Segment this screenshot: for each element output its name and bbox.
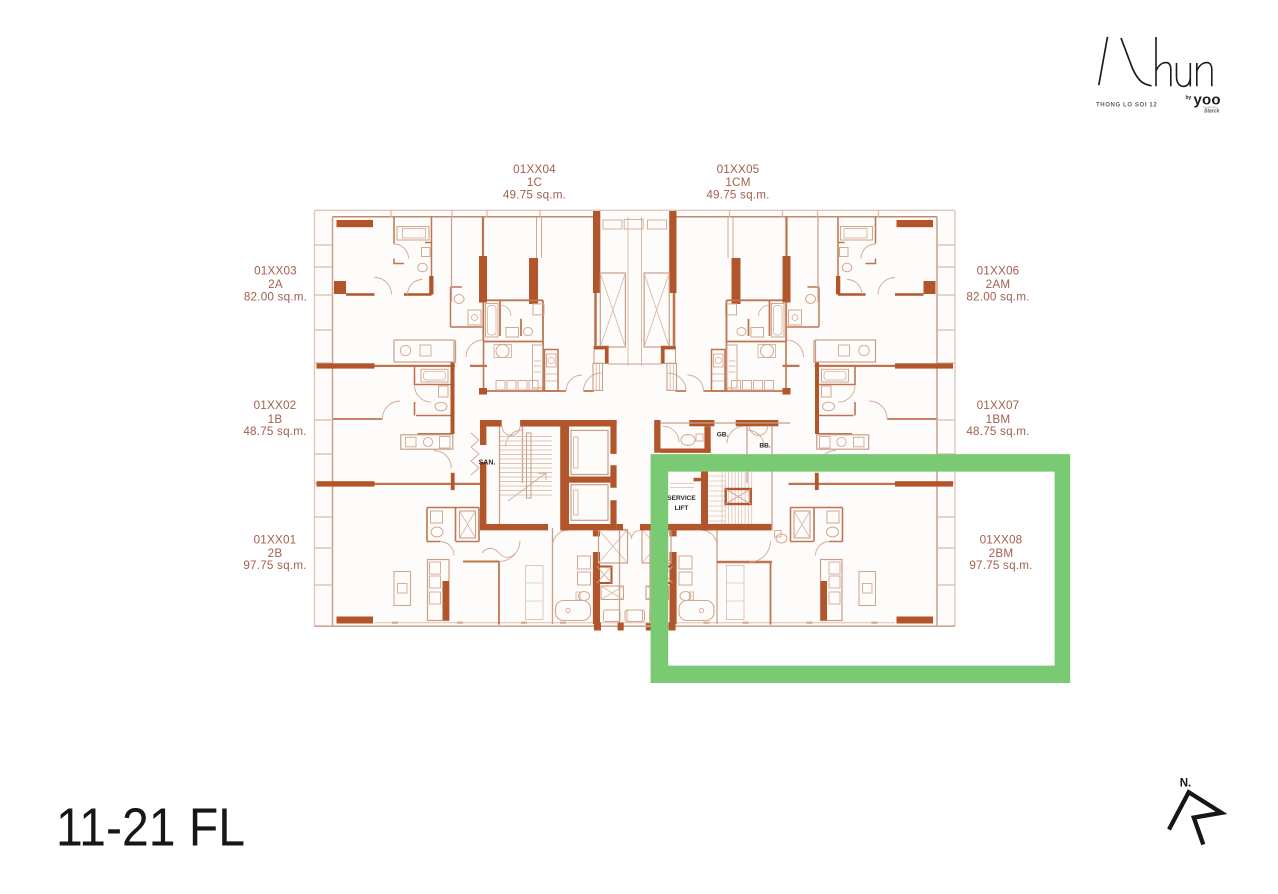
svg-text:48.75 sq.m.: 48.75 sq.m. — [966, 425, 1029, 438]
svg-text:SERVICE: SERVICE — [667, 495, 696, 502]
svg-text:SAN.: SAN. — [479, 460, 496, 467]
svg-text:01XX06: 01XX06 — [977, 265, 1020, 278]
svg-text:48.75 sq.m.: 48.75 sq.m. — [243, 425, 306, 438]
svg-text:01XX07: 01XX07 — [977, 399, 1020, 412]
svg-text:01XX01: 01XX01 — [254, 534, 297, 547]
svg-text:01XX02: 01XX02 — [254, 399, 297, 412]
svg-text:11-21 FL: 11-21 FL — [56, 799, 245, 858]
svg-text:82.00 sq.m.: 82.00 sq.m. — [244, 291, 307, 304]
svg-text:2A: 2A — [268, 278, 283, 291]
svg-text:by: by — [1186, 95, 1192, 101]
svg-text:49.75 sq.m.: 49.75 sq.m. — [503, 189, 566, 202]
svg-text:1CM: 1CM — [725, 176, 750, 189]
svg-text:01XX08: 01XX08 — [980, 534, 1023, 547]
svg-text:GB.: GB. — [717, 432, 729, 439]
svg-text:2AM: 2AM — [986, 278, 1011, 291]
svg-text:THONG LO SOI 12: THONG LO SOI 12 — [1096, 103, 1157, 109]
svg-text:97.75 sq.m.: 97.75 sq.m. — [243, 559, 306, 572]
svg-text:01XX04: 01XX04 — [513, 163, 556, 176]
svg-text:01XX05: 01XX05 — [717, 163, 760, 176]
svg-text:49.75 sq.m.: 49.75 sq.m. — [706, 189, 769, 202]
svg-text:N.: N. — [1180, 778, 1192, 790]
svg-text:97.75 sq.m.: 97.75 sq.m. — [969, 559, 1032, 572]
svg-text:LIFT: LIFT — [675, 505, 689, 512]
svg-text:BB.: BB. — [759, 443, 770, 450]
svg-text:82.00 sq.m.: 82.00 sq.m. — [966, 291, 1029, 304]
svg-text:Starck: Starck — [1204, 109, 1220, 115]
svg-text:01XX03: 01XX03 — [254, 265, 297, 278]
svg-text:1C: 1C — [527, 176, 542, 189]
